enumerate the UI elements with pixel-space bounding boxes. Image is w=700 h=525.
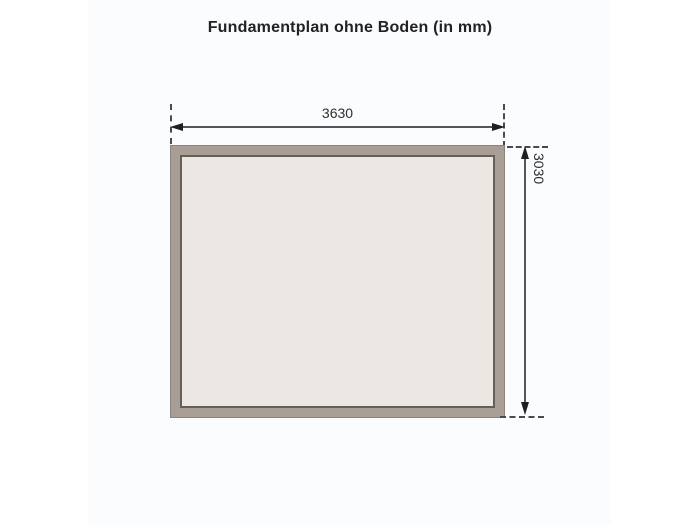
height-dimension-label: 3030 [531, 153, 547, 410]
height-extension-line-bottom [500, 416, 544, 418]
arrowhead-left-icon [170, 123, 183, 131]
page: Fundamentplan ohne Boden (in mm) 3630 30… [0, 0, 700, 525]
width-dimension-label: 3630 [172, 105, 503, 121]
arrowhead-down-icon [521, 402, 529, 415]
foundation-outline [170, 145, 505, 418]
foundation-surface [180, 155, 495, 408]
height-dimension-line [524, 153, 526, 410]
arrowhead-right-icon [492, 123, 505, 131]
width-dimension-line [176, 126, 498, 128]
arrowhead-up-icon [521, 146, 529, 159]
page-title: Fundamentplan ohne Boden (in mm) [0, 19, 700, 37]
